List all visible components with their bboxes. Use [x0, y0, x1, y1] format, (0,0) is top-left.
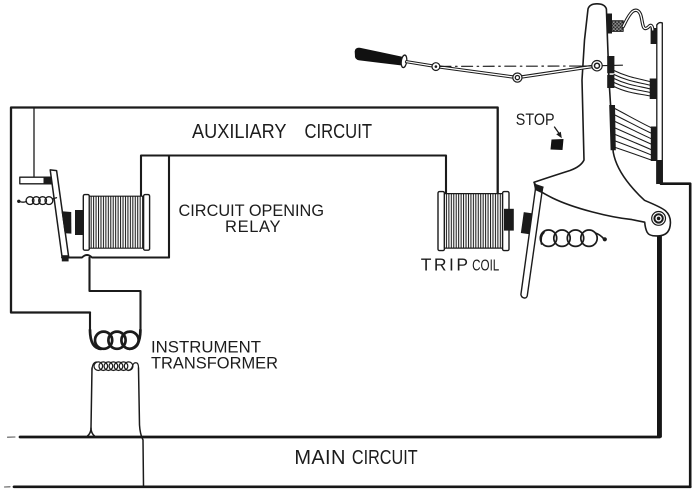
svg-text:RELAY: RELAY	[225, 218, 281, 236]
svg-text:COIL: COIL	[472, 257, 499, 274]
svg-text:CIRCUIT: CIRCUIT	[352, 447, 418, 469]
svg-text:CIRCUIT: CIRCUIT	[305, 121, 373, 143]
svg-text:MAIN: MAIN	[294, 447, 345, 469]
svg-text:AUXILIARY: AUXILIARY	[192, 121, 287, 143]
svg-text:TRANSFORMER: TRANSFORMER	[151, 353, 278, 372]
svg-text:STOP: STOP	[516, 110, 555, 129]
svg-text:TRIP: TRIP	[421, 255, 468, 275]
